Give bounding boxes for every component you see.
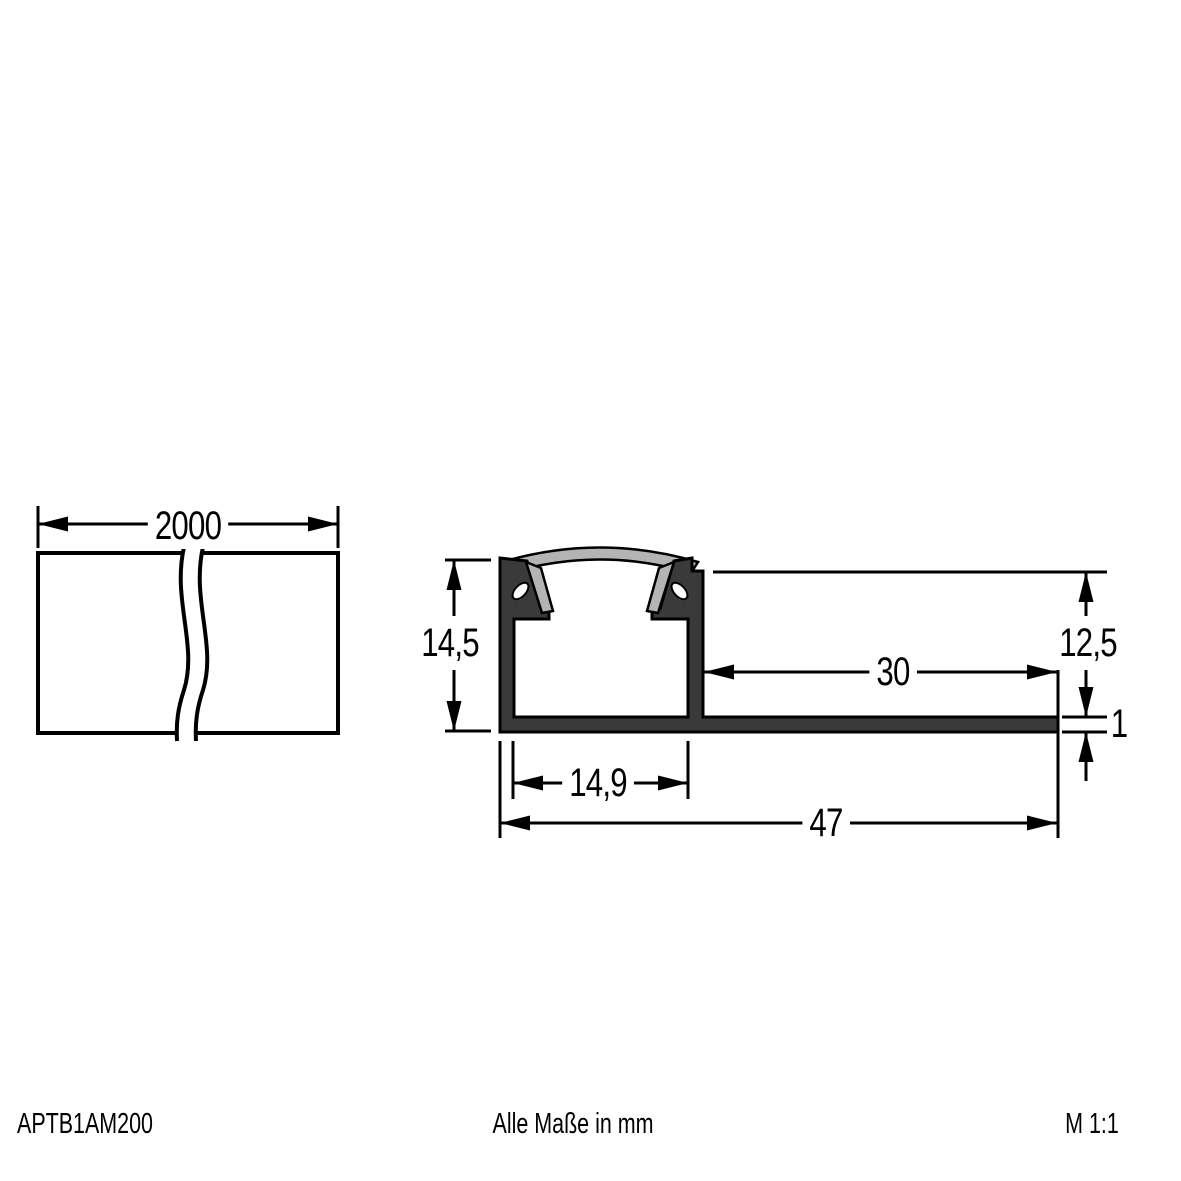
arrowhead-up bbox=[447, 560, 462, 590]
dimension-tile-depth-12-5 bbox=[713, 572, 1107, 717]
dimension-label-total-width: 47 bbox=[802, 800, 849, 846]
arrowhead-down bbox=[447, 701, 462, 731]
arrowhead-left bbox=[38, 517, 68, 532]
technical-drawing-page: 2000 14,5 12,5 30 1 14,9 47 APTB1AM200 A… bbox=[0, 0, 1181, 1181]
arrowhead-down bbox=[1079, 687, 1094, 717]
dimension-label-flange-length: 30 bbox=[869, 649, 916, 695]
arrowhead-right bbox=[1027, 816, 1057, 831]
arrowhead-right bbox=[308, 517, 338, 532]
dimension-label-tile-depth: 12,5 bbox=[1053, 616, 1123, 670]
dimension-label-flange-thickness: 1 bbox=[1108, 701, 1131, 747]
dimension-label-inner-width: 14,9 bbox=[562, 760, 634, 806]
dimension-label-height: 14,5 bbox=[415, 616, 485, 670]
units-note: Alle Maße in mm bbox=[493, 1109, 654, 1141]
arrowhead-left bbox=[704, 665, 734, 680]
cross-section-view bbox=[500, 548, 1058, 733]
arrowhead-right bbox=[658, 776, 688, 791]
arrowhead-up bbox=[1079, 732, 1094, 762]
dimension-flange-thickness-1 bbox=[1062, 717, 1107, 781]
arrowhead-left bbox=[513, 776, 543, 791]
drawing-scale: M 1:1 bbox=[1065, 1109, 1119, 1141]
arrowhead-up bbox=[1079, 572, 1094, 602]
technical-drawing bbox=[0, 0, 1181, 1181]
dimension-label-length: 2000 bbox=[148, 503, 228, 549]
article-number: APTB1AM200 bbox=[17, 1109, 153, 1141]
profile-body bbox=[500, 558, 1058, 732]
arrowhead-left bbox=[500, 816, 530, 831]
